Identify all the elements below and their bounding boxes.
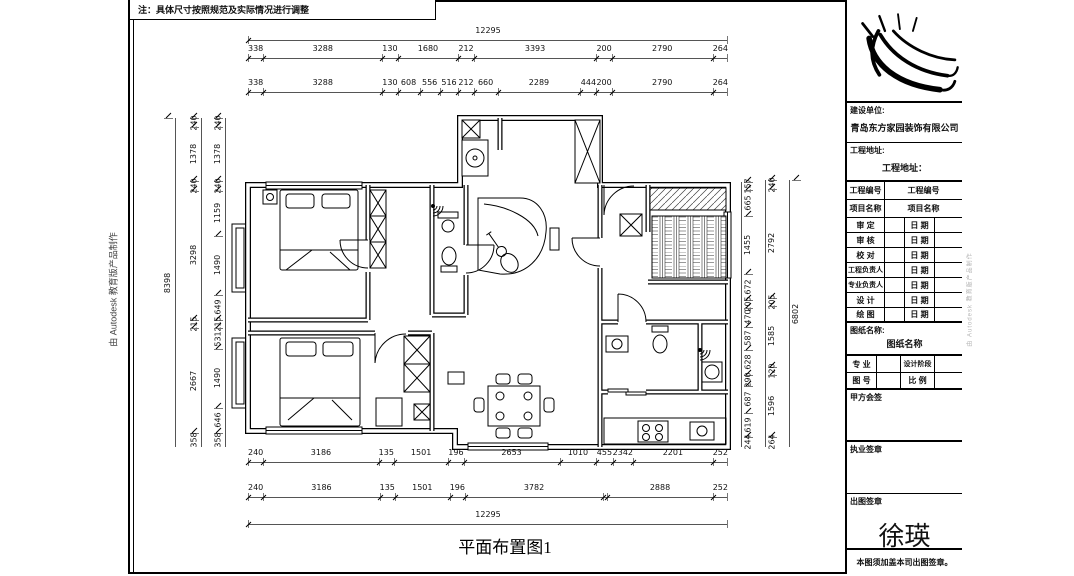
dim-segment: 2790 — [612, 79, 713, 92]
dim-segment: 130 — [382, 79, 397, 92]
dim-segment: 212 — [458, 45, 473, 58]
date-label: 日 期 — [905, 278, 935, 292]
dim-segment: 1501 — [395, 484, 450, 497]
project-name-row: 项目名称 项目名称 — [847, 200, 962, 218]
wardrobe-1-icon — [370, 190, 386, 268]
dim-segment: 264 — [713, 79, 728, 92]
construction-unit-cell: 建设单位: 青岛东方家园装饰有限公司 — [847, 103, 962, 143]
dim-segment: 212 — [458, 79, 473, 92]
dim-right-c: 6802 — [789, 180, 803, 447]
discipline-lead-row: 专业负责人 日 期 — [847, 278, 962, 293]
proofreader-label: 校 对 — [847, 248, 885, 262]
title-block-footer-note: 本图须加盖本司出图签章。 — [847, 550, 962, 574]
dim-left-overall: 8398 — [162, 118, 176, 447]
toilet-2-icon — [652, 326, 668, 353]
proofreader-value — [885, 248, 905, 262]
company-name: 青岛东方家园装饰有限公司 — [847, 121, 962, 134]
dim-segment: 2667 — [188, 328, 201, 433]
practice-seal-cell: 执业签章 — [847, 442, 962, 494]
toilet-1-icon — [441, 247, 457, 272]
design-stage-label: 设计阶段 — [901, 356, 935, 372]
drafter-label: 绘 图 — [847, 308, 885, 321]
logo-swoosh-icon — [850, 3, 960, 99]
sink-2-icon — [606, 336, 628, 352]
project-address-label: 工程地址: — [850, 145, 885, 156]
title-block: 建设单位: 青岛东方家园装饰有限公司 工程地址: 工程地址： 工程编号 工程编号… — [845, 0, 962, 574]
reviewer-label: 审 核 — [847, 233, 885, 247]
dim-top-overall: 12295 — [248, 27, 728, 41]
date-value — [935, 308, 962, 321]
dim-segment: 338 — [248, 45, 263, 58]
discipline-lead-label: 专业负责人 — [847, 278, 885, 292]
dim-segment: 2792 — [766, 189, 779, 297]
date-label: 日 期 — [905, 293, 935, 307]
dim-left-inner: 2401378240115914906492155311490646358 — [212, 118, 226, 447]
dim-segment: 3782 — [465, 484, 603, 497]
dim-segment: 252 — [713, 449, 728, 462]
wardrobe-2-icon — [404, 336, 430, 392]
dim-segment: 3186 — [263, 484, 379, 497]
dim-bottom-overall: 12295 — [248, 511, 728, 525]
dim-segment: 1010 — [560, 449, 597, 462]
sheet-name-value: 图纸名称 — [847, 337, 962, 350]
project-name-value: 项目名称 — [885, 200, 962, 217]
project-name-label: 项目名称 — [847, 200, 885, 217]
approver-value — [885, 218, 905, 232]
dim-segment: 200 — [596, 79, 611, 92]
approver-row: 审 定 日 期 — [847, 218, 962, 233]
dim-segment: 444 — [580, 79, 596, 92]
dim-segment: 556 — [420, 79, 440, 92]
dim-segment: 3186 — [263, 449, 378, 462]
dim-segment: 358 — [212, 433, 225, 447]
project-lead-row: 工程负责人 日 期 — [847, 263, 962, 278]
date-label: 日 期 — [905, 308, 935, 321]
desk-2-icon — [376, 398, 402, 426]
dim-segment: 3288 — [263, 45, 382, 58]
dim-segment: 3393 — [474, 45, 597, 58]
date-value — [935, 218, 962, 232]
date-value — [935, 233, 962, 247]
date-value — [935, 263, 962, 277]
scale-label: 比 例 — [901, 373, 935, 388]
dim-segment: 3298 — [188, 191, 201, 320]
dim-segment: 1378 — [188, 127, 201, 181]
dim-segment: 1490 — [212, 349, 225, 407]
designer-label: 设 计 — [847, 293, 885, 307]
dim-segment: 196 — [450, 484, 465, 497]
dim-segment: 252 — [713, 484, 728, 497]
dim-bottom-row1: 240318613515011962653101045523422201252 — [248, 449, 728, 463]
date-label: 日 期 — [905, 218, 935, 232]
dim-segment: 130 — [382, 45, 397, 58]
drawing-sheet-page: { "note": "注：具体尺寸按照规范及实际情况进行调整", "waterm… — [0, 0, 1074, 576]
reviewer-value — [885, 233, 905, 247]
dining-table-icon — [474, 374, 554, 438]
major-row: 专 业 设计阶段 — [847, 356, 962, 373]
date-value — [935, 248, 962, 262]
dim-left-outer: 240137824032982152667358 — [188, 118, 202, 447]
parquet-floor — [652, 216, 726, 278]
dim-segment: 358 — [188, 433, 201, 447]
party-countersign-cell: 甲方会签 — [847, 390, 962, 442]
bed-1-icon — [263, 190, 358, 270]
dim-segment: 8398 — [162, 118, 175, 447]
dim-segment: 1378 — [212, 127, 225, 181]
design-stage-value — [935, 356, 962, 372]
kitchen-counter-icon — [604, 418, 726, 444]
washing-machine-icon — [462, 140, 488, 176]
dim-right-a: 1576651455672205470587628290687619244 — [741, 182, 755, 447]
dim-segment: 1490 — [212, 236, 225, 294]
dim-top-row2: 3383288130608556516212660228944420027902… — [248, 79, 728, 93]
dim-segment: 135 — [379, 449, 394, 462]
sink-1-icon — [438, 212, 458, 232]
closet-hatch — [650, 188, 726, 210]
project-lead-label: 工程负责人 — [847, 263, 885, 277]
dim-top-row1: 3383288130168021233932002790264 — [248, 45, 728, 59]
issue-seal-cell: 出图签章 徐瑛 — [847, 494, 962, 550]
dim-segment: 660 — [474, 79, 498, 92]
bed-2-icon — [280, 338, 360, 426]
project-address-value: 工程地址： — [847, 161, 962, 174]
dim-segment: 2653 — [464, 449, 560, 462]
dim-segment: 264 — [713, 45, 728, 58]
project-number-value: 工程编号 — [885, 182, 962, 199]
dim-segment: 244 — [742, 437, 755, 447]
signature: 徐瑛 — [847, 516, 962, 553]
washer-2-icon — [702, 362, 722, 382]
dim-segment: 12295 — [248, 511, 728, 524]
dim-segment: 240 — [248, 449, 263, 462]
dim-segment: 1585 — [766, 306, 779, 367]
party-countersign-label: 甲方会签 — [850, 392, 882, 403]
dim-segment: 608 — [398, 79, 420, 92]
cabinet-icon — [448, 372, 464, 384]
sheet-name-cell: 图纸名称: 图纸名称 — [847, 323, 962, 356]
designer-row: 设 计 日 期 — [847, 293, 962, 308]
dim-segment: 455 — [596, 449, 612, 462]
dim-segment: 338 — [248, 79, 263, 92]
dim-segment: 196 — [448, 449, 463, 462]
dim-segment: 2790 — [612, 45, 713, 58]
date-label: 日 期 — [905, 248, 935, 262]
date-value — [935, 293, 962, 307]
dim-segment: 2289 — [498, 79, 581, 92]
issue-seal-label: 出图签章 — [850, 496, 882, 507]
date-label: 日 期 — [905, 233, 935, 247]
construction-unit-label: 建设单位: — [850, 105, 885, 116]
major-label: 专 业 — [847, 356, 877, 372]
dim-segment: 2888 — [607, 484, 712, 497]
company-logo — [847, 0, 962, 103]
dim-bottom-row2: 2403186135150119637822888252 — [248, 484, 728, 498]
reviewer-row: 审 核 日 期 — [847, 233, 962, 248]
dim-segment: 200 — [596, 45, 611, 58]
drafter-row: 绘 图 日 期 — [847, 308, 962, 323]
dim-segment: 135 — [380, 484, 395, 497]
project-number-row: 工程编号 工程编号 — [847, 182, 962, 200]
practice-seal-label: 执业签章 — [850, 444, 882, 455]
dim-segment: 1501 — [394, 449, 448, 462]
project-number-label: 工程编号 — [847, 182, 885, 199]
dim-segment: 2201 — [633, 449, 713, 462]
dim-segment: 1680 — [398, 45, 459, 58]
figure-number-label: 图 号 — [847, 373, 877, 388]
major-value — [877, 356, 901, 372]
date-label: 日 期 — [905, 263, 935, 277]
project-lead-value — [885, 263, 905, 277]
dim-segment: 240 — [248, 484, 263, 497]
project-address-cell: 工程地址: 工程地址： — [847, 143, 962, 182]
dim-segment: 6802 — [790, 180, 803, 447]
proofreader-row: 校 对 日 期 — [847, 248, 962, 263]
dim-segment: 516 — [440, 79, 459, 92]
designer-value — [885, 293, 905, 307]
dim-segment: 1455 — [742, 216, 755, 273]
scale-value — [935, 373, 962, 388]
dim-segment: 1596 — [766, 375, 779, 437]
figure-number-value — [877, 373, 901, 388]
dim-segment: 3288 — [263, 79, 382, 92]
dim-segment: 12295 — [248, 27, 728, 40]
guitar-icon — [482, 229, 521, 276]
figure-number-row: 图 号 比 例 — [847, 373, 962, 390]
discipline-lead-value — [885, 278, 905, 292]
dim-right-b: 240279220515851201596264 — [765, 180, 779, 447]
date-value — [935, 278, 962, 292]
drawing-title: 平面布置图1 — [405, 533, 605, 558]
dim-segment: 264 — [766, 437, 779, 447]
dim-segment: 1159 — [212, 191, 225, 236]
approver-label: 审 定 — [847, 218, 885, 232]
sheet-name-label: 图纸名称: — [850, 325, 885, 336]
drafter-value — [885, 308, 905, 321]
dim-segment: 2342 — [613, 449, 633, 462]
